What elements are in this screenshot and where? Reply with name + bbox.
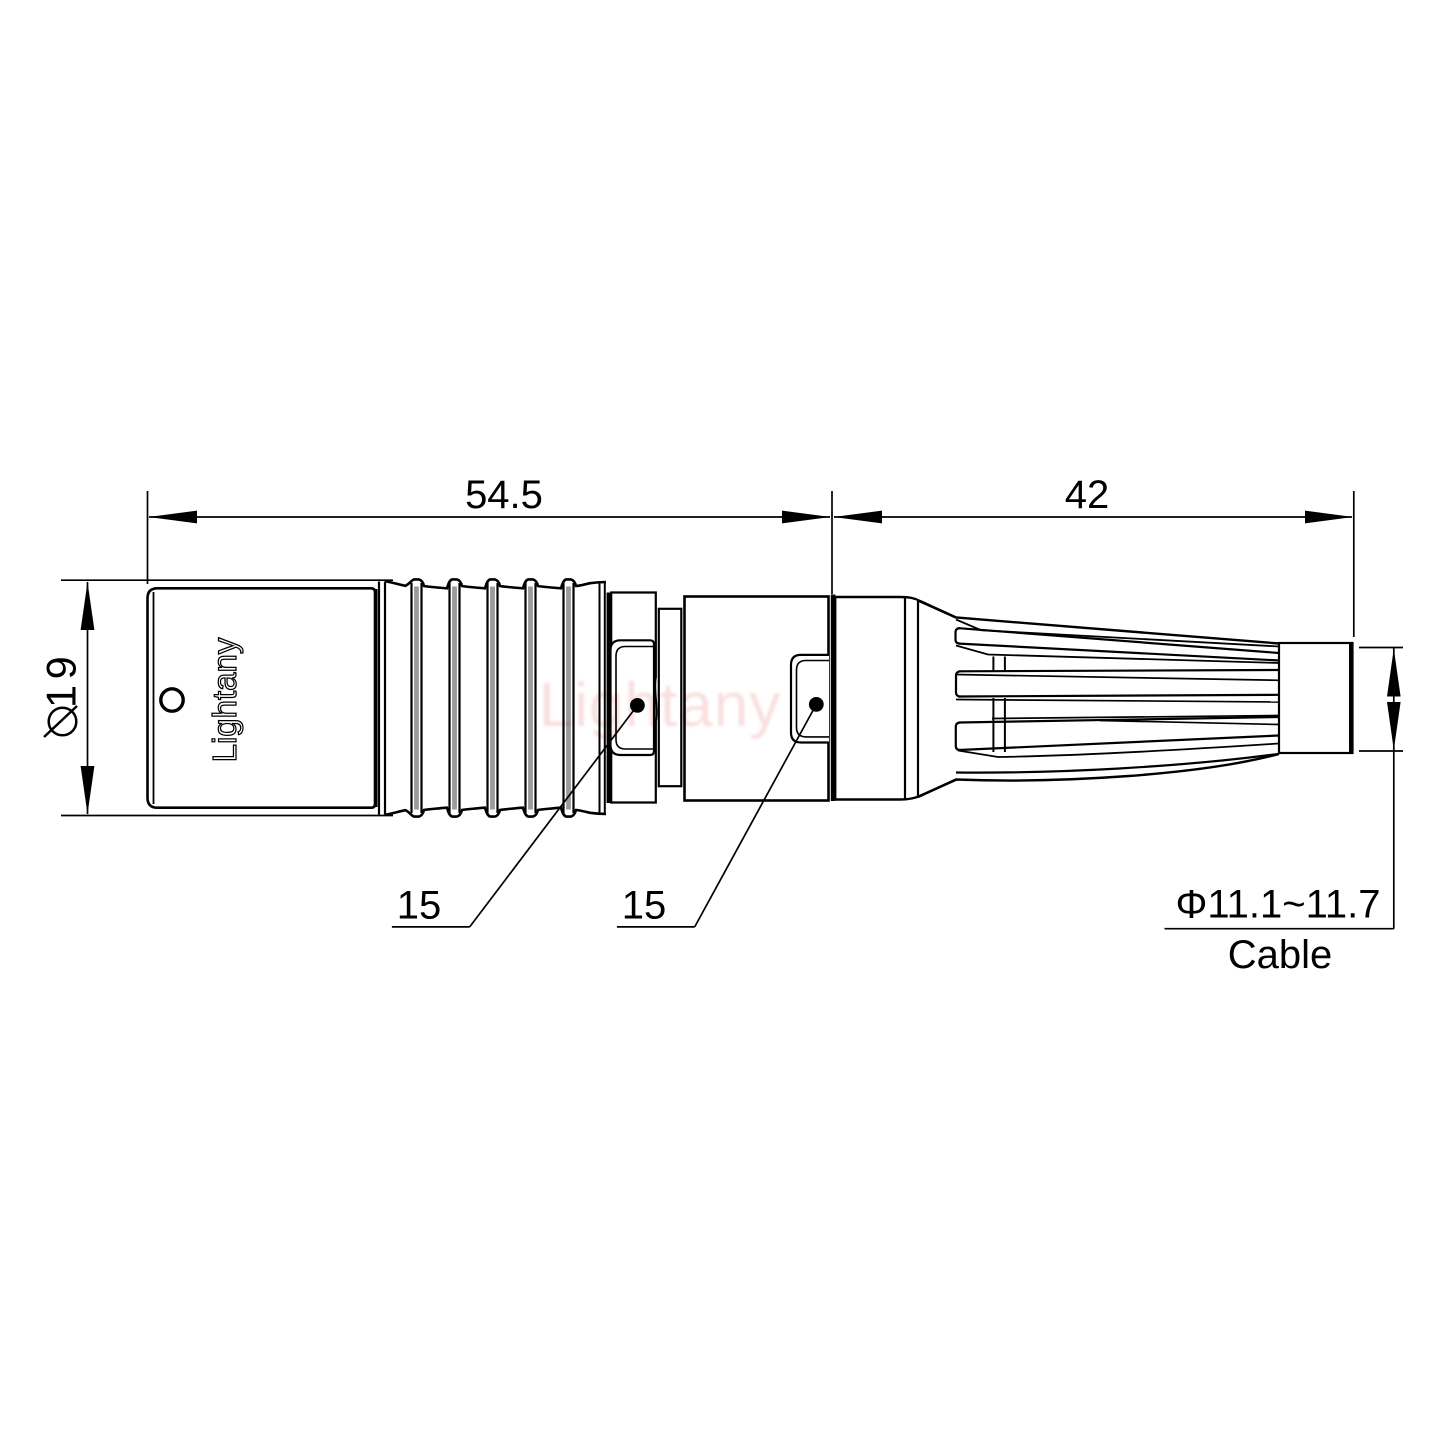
- svg-text:Cable: Cable: [1228, 933, 1333, 977]
- svg-text:42: 42: [1065, 473, 1110, 517]
- svg-text:15: 15: [622, 884, 667, 928]
- svg-text:54.5: 54.5: [465, 473, 543, 517]
- svg-text:Lightany: Lightany: [539, 671, 781, 740]
- svg-text:Lightany: Lightany: [206, 637, 243, 762]
- svg-text:Φ11.1~11.7: Φ11.1~11.7: [1175, 883, 1380, 927]
- svg-text:15: 15: [397, 884, 442, 928]
- svg-text:19: 19: [38, 651, 85, 708]
